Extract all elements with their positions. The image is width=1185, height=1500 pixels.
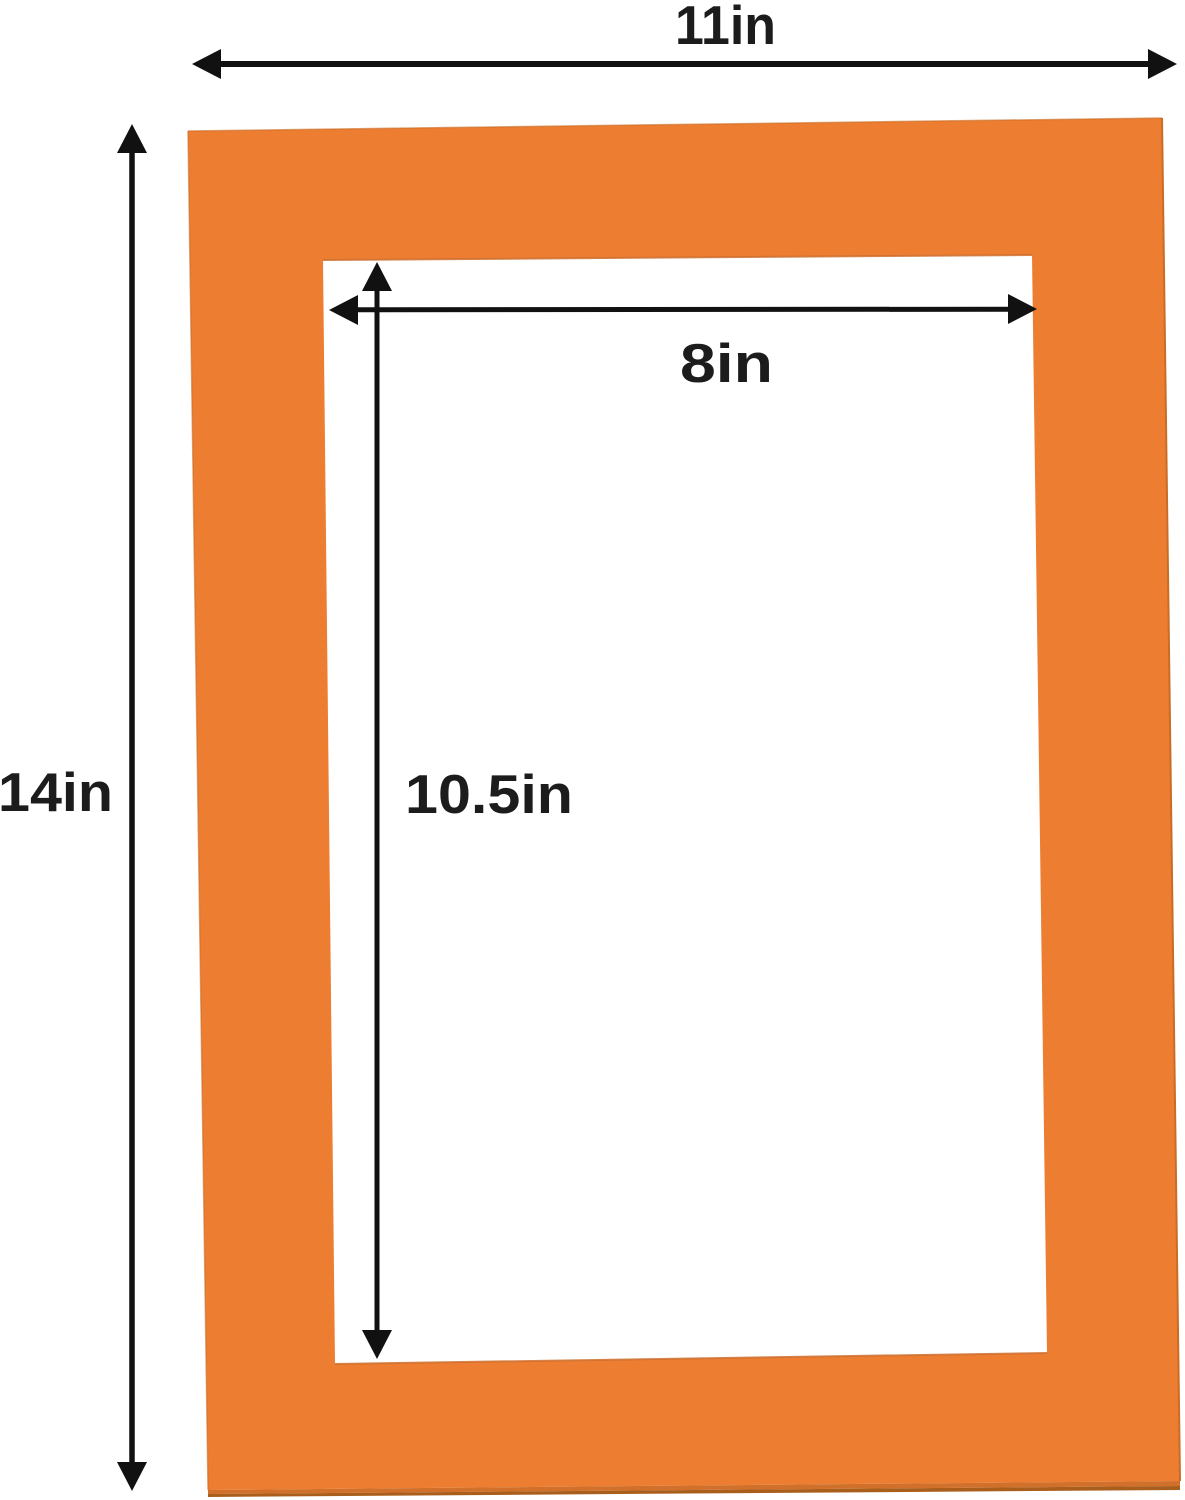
svg-text:11in: 11in [675,0,776,56]
svg-text:10.5in: 10.5in [405,763,573,825]
svg-text:8in: 8in [680,332,773,394]
svg-text:14in: 14in [0,761,113,823]
